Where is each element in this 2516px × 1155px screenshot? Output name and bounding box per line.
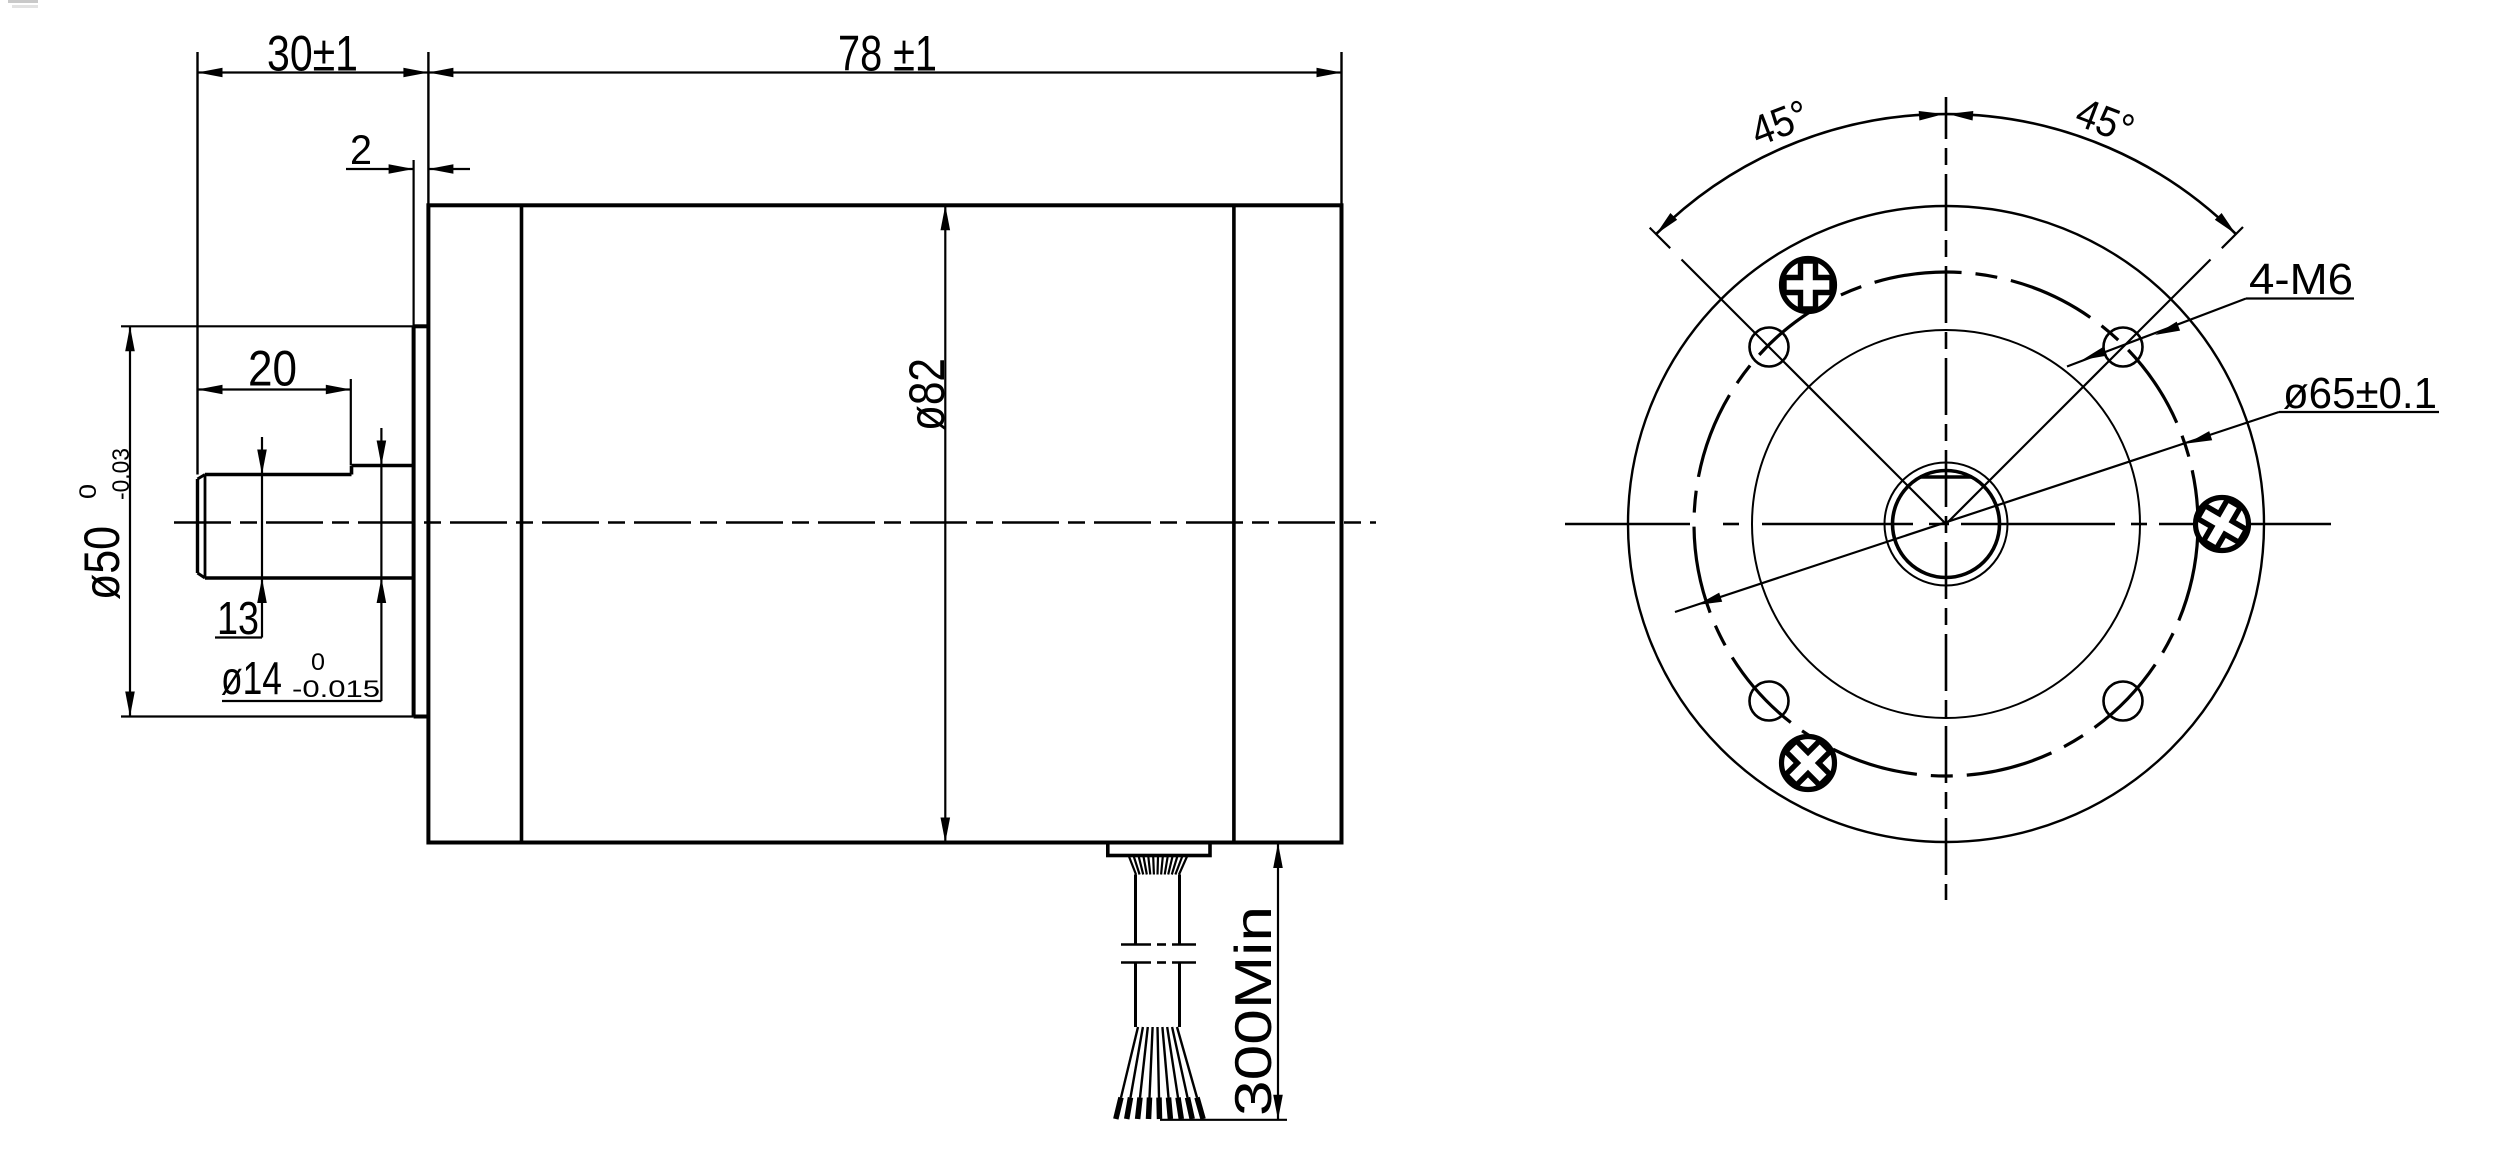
svg-text:78 ±1: 78 ±1 <box>838 26 937 82</box>
svg-text:0: 0 <box>75 484 102 499</box>
svg-text:2: 2 <box>350 126 372 173</box>
svg-text:13: 13 <box>217 592 259 644</box>
svg-text:ø82: ø82 <box>899 358 955 431</box>
svg-text:20: 20 <box>248 341 297 397</box>
svg-text:30±1: 30±1 <box>267 26 358 82</box>
svg-text:300Min: 300Min <box>1225 906 1283 1116</box>
svg-text:4-M6: 4-M6 <box>2249 255 2353 304</box>
svg-text:ø50: ø50 <box>74 526 130 600</box>
svg-text:-0.015: -0.015 <box>292 676 380 703</box>
svg-text:ø14: ø14 <box>221 652 282 704</box>
svg-text:0: 0 <box>311 649 325 676</box>
svg-text:ø65±0.1: ø65±0.1 <box>2283 369 2437 418</box>
svg-text:-0.03: -0.03 <box>108 448 135 500</box>
